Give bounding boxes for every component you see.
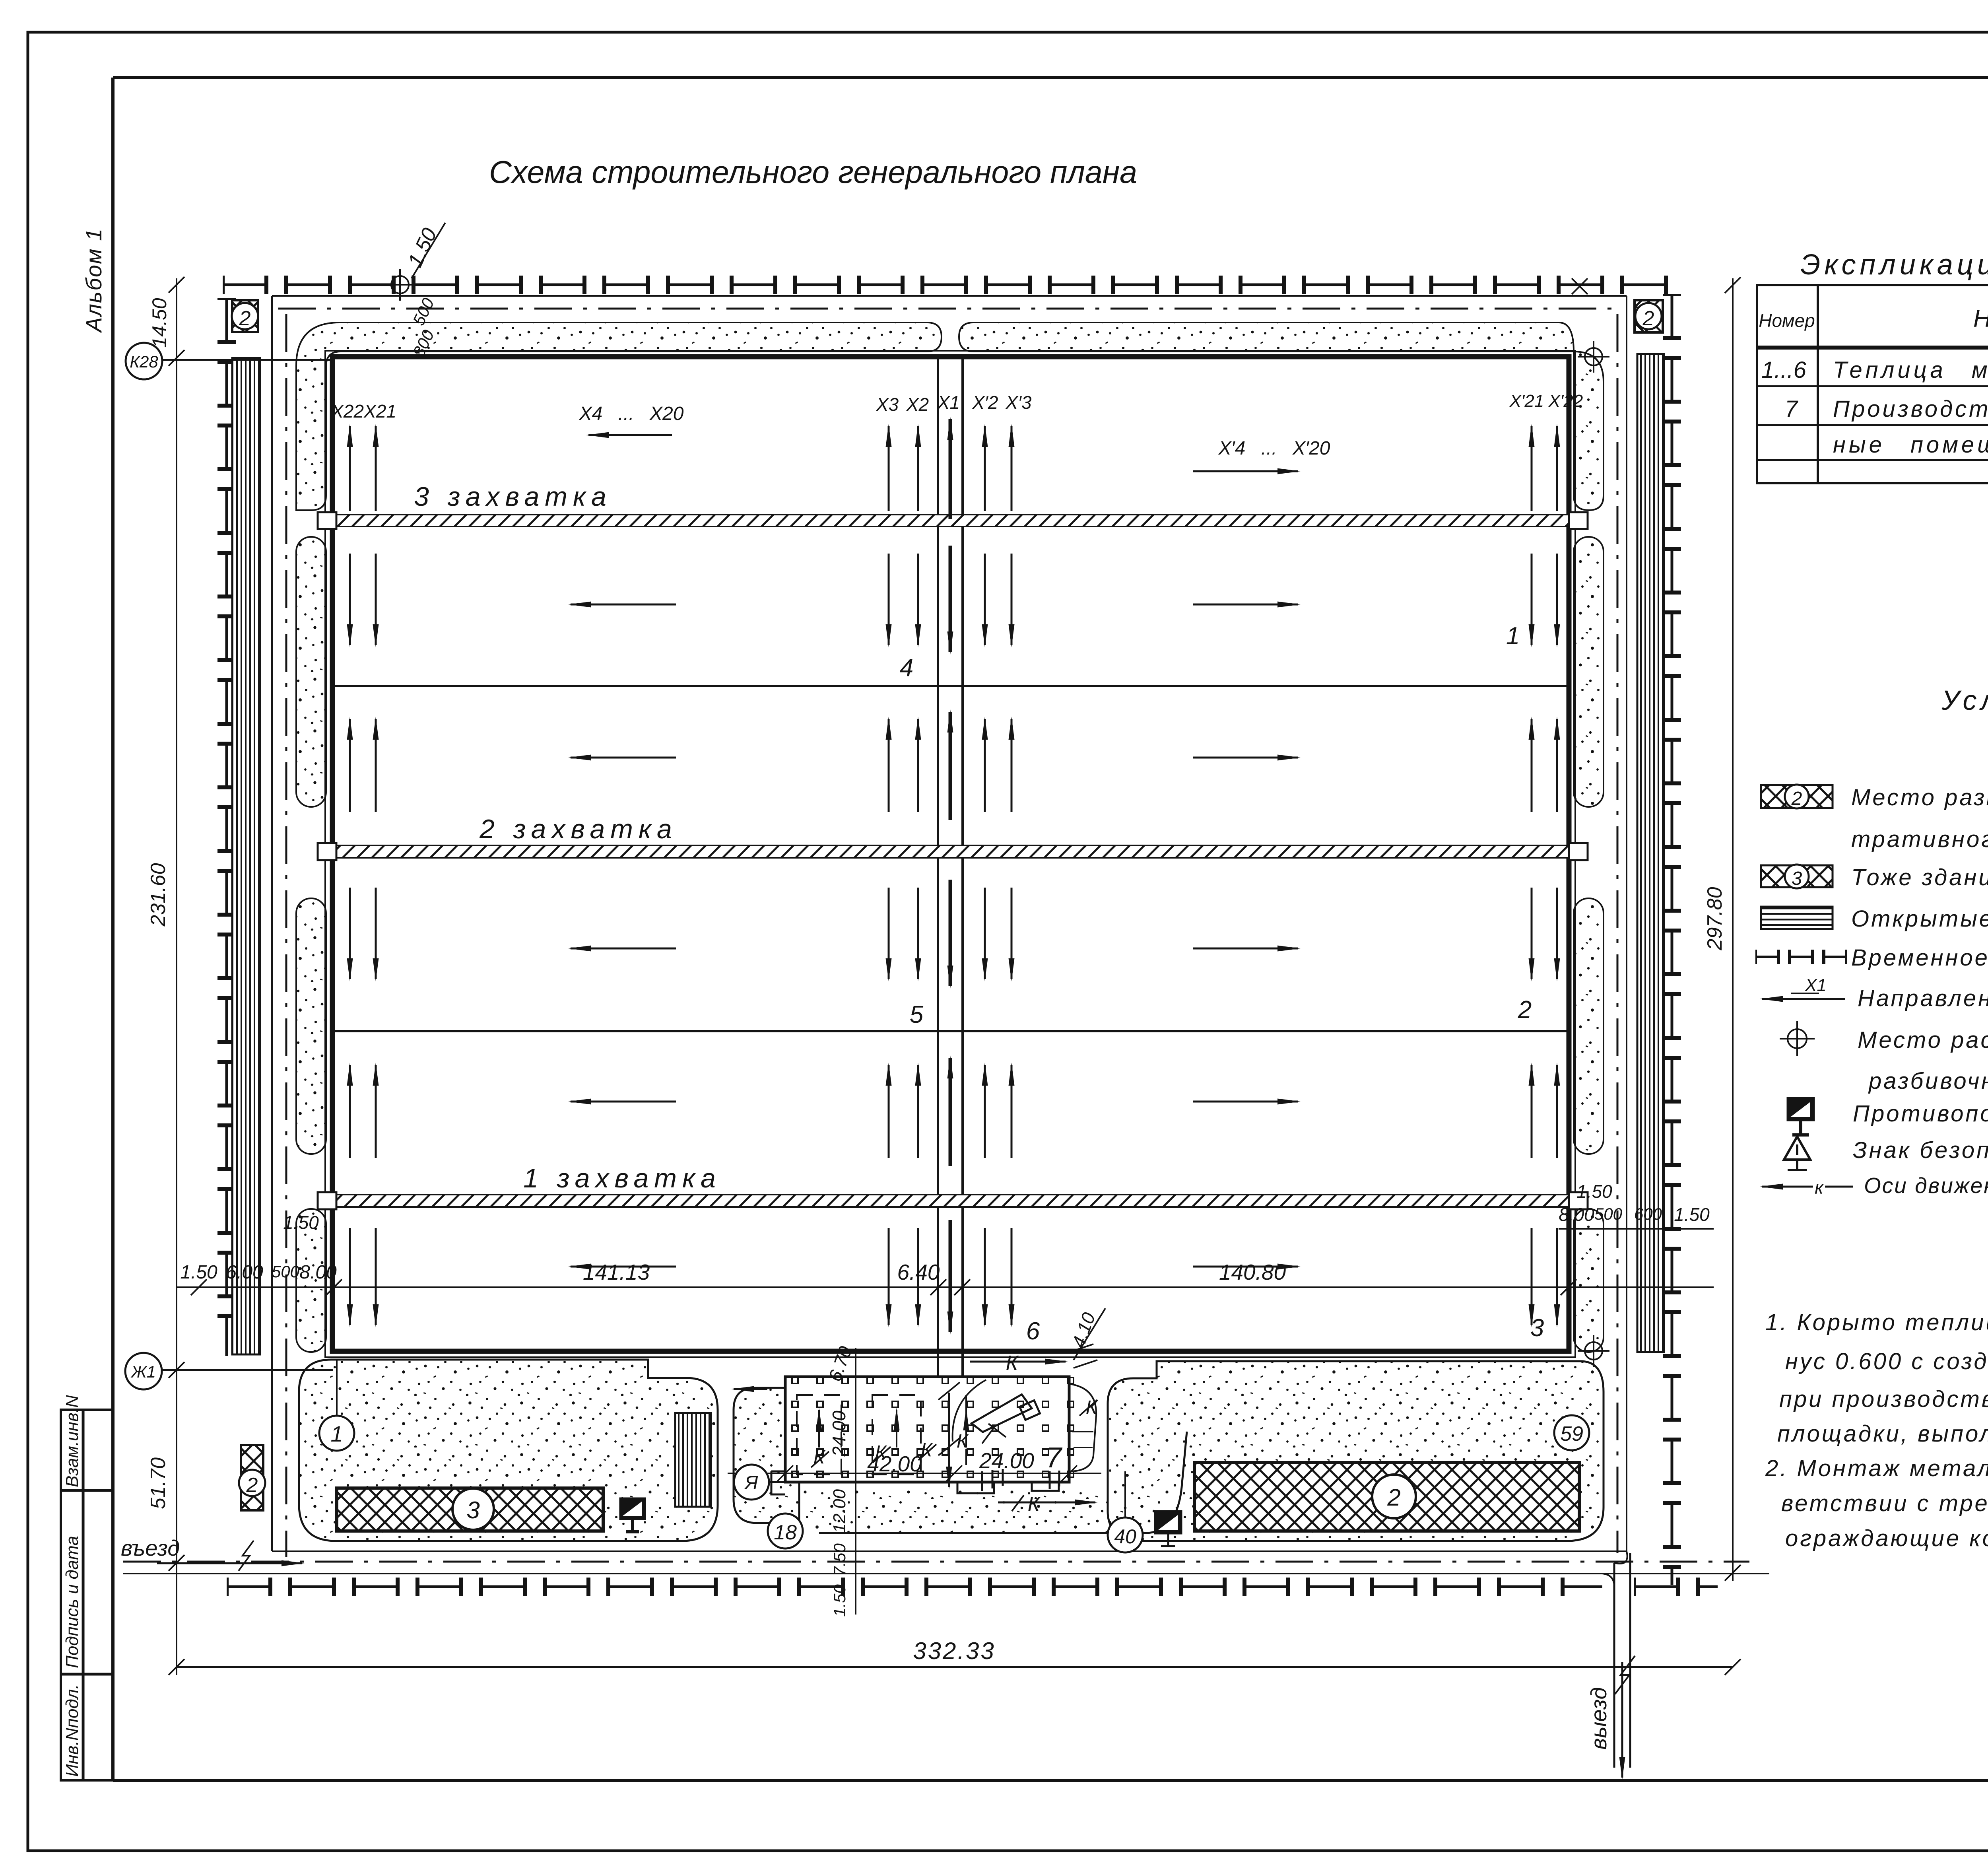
svg-text:24.00: 24.00 — [829, 1411, 849, 1457]
svg-text:X22: X22 — [331, 401, 364, 422]
svg-text:нус 0.600 с созданием проектн: нус 0.600 с созданием проектного уклона … — [1785, 1348, 1988, 1374]
svg-text:Номер: Номер — [1759, 310, 1815, 331]
svg-text:2 захватка: 2 захватка — [479, 814, 678, 844]
svg-text:X′3: X′3 — [1006, 392, 1032, 413]
svg-text:1...6: 1...6 — [1761, 357, 1807, 383]
svg-text:2: 2 — [1642, 307, 1654, 330]
svg-text:24.00: 24.00 — [979, 1448, 1034, 1473]
svg-text:1.50: 1.50 — [830, 1584, 849, 1617]
svg-text:Ж1: Ж1 — [130, 1362, 156, 1381]
svg-text:12.00: 12.00 — [830, 1489, 849, 1533]
svg-text:7: 7 — [1046, 1442, 1063, 1474]
svg-text:600: 600 — [1634, 1205, 1662, 1223]
svg-text:332.33: 332.33 — [913, 1638, 996, 1664]
svg-text:8.00: 8.00 — [1559, 1204, 1594, 1225]
svg-text:X1: X1 — [937, 392, 960, 413]
svg-text:6.00: 6.00 — [226, 1262, 263, 1283]
svg-text:1. Корыто теплицы выполняетс: 1. Корыто теплицы выполняется на отметке… — [1765, 1310, 1988, 1335]
svg-text:140.80: 140.80 — [1219, 1260, 1286, 1284]
svg-text:разбивочных осей: разбивочных осей — [1868, 1068, 1988, 1094]
svg-text:1: 1 — [1506, 622, 1520, 650]
svg-text:6: 6 — [1026, 1317, 1040, 1345]
svg-text:к: к — [1815, 1177, 1824, 1198]
svg-text:К: К — [1006, 1352, 1019, 1375]
svg-text:ограждающие конструкции.“: ограждающие конструкции.“ — [1785, 1525, 1988, 1551]
svg-text:Альбом 1: Альбом 1 — [81, 228, 106, 333]
svg-text:1.50: 1.50 — [180, 1262, 217, 1283]
svg-text:3: 3 — [1792, 868, 1802, 889]
svg-text:Знак безопасности: Знак безопасности — [1853, 1137, 1988, 1163]
svg-text:X′21: X′21 — [1509, 391, 1544, 411]
svg-text:Открытые складские площадки: Открытые складские площадки — [1851, 906, 1988, 932]
svg-text:выезд: выезд — [1586, 1687, 1611, 1750]
svg-text:2: 2 — [246, 1474, 258, 1497]
svg-text:X4 ... X20: X4 ... X20 — [579, 403, 684, 424]
svg-text:7.50: 7.50 — [830, 1543, 849, 1576]
svg-text:297.80: 297.80 — [1703, 887, 1726, 950]
svg-text:6.40: 6.40 — [897, 1260, 940, 1284]
svg-text:8.00: 8.00 — [299, 1262, 337, 1283]
svg-text:7: 7 — [1785, 396, 1799, 422]
svg-text:500: 500 — [1594, 1205, 1623, 1223]
svg-text:141.13: 141.13 — [583, 1260, 650, 1284]
svg-text:1.50: 1.50 — [1674, 1204, 1710, 1225]
svg-text:Подпись и дата: Подпись и дата — [62, 1536, 82, 1668]
svg-text:Взам.инв.N: Взам.инв.N — [62, 1395, 82, 1487]
svg-text:Временное ограждение по ГОС: Временное ограждение по ГОСТ 23407-78 — [1851, 945, 1988, 971]
svg-text:500: 500 — [272, 1262, 300, 1281]
svg-text:X2: X2 — [906, 394, 929, 415]
svg-text:Инв.Nподл.: Инв.Nподл. — [62, 1684, 82, 1777]
svg-text:2: 2 — [1791, 788, 1802, 809]
svg-text:ные помещения: ные помещения — [1833, 432, 1988, 458]
svg-text:18: 18 — [774, 1521, 797, 1544]
svg-text:тративного и санитарно-бытовог: тративного и санитарно-бытового назначен… — [1851, 826, 1988, 852]
svg-text:Направление производства раб: Направление производства работ по пролет… — [1858, 985, 1988, 1011]
svg-text:Производственные и вспомогател: Производственные и вспомогатель- — [1833, 396, 1988, 422]
svg-text:2: 2 — [1387, 1484, 1400, 1511]
svg-text:5: 5 — [910, 1001, 924, 1028]
svg-text:К: К — [1028, 1493, 1041, 1516]
svg-text:Наименование: Наименование — [1973, 305, 1988, 332]
svg-text:X3: X3 — [876, 394, 899, 415]
svg-text:Тоже зданий складского назн: Тоже зданий складского назначения — [1851, 865, 1988, 890]
svg-text:Я: Я — [744, 1473, 758, 1494]
svg-text:40: 40 — [1114, 1525, 1136, 1548]
svg-text:при производстве работ по в: при производстве работ по вертикальной п… — [1779, 1386, 1988, 1412]
svg-text:площадки, выполняемой в подг: площадки, выполняемой в подготовительный… — [1777, 1421, 1988, 1447]
svg-text:1.50: 1.50 — [283, 1212, 319, 1233]
svg-text:231.60: 231.60 — [147, 863, 170, 927]
svg-text:К28: К28 — [130, 352, 158, 371]
svg-text:ветствии с требованиями СНиП: ветствии с требованиями СНиП 3.03.01-87 … — [1781, 1490, 1988, 1516]
svg-text:51.70: 51.70 — [147, 1457, 170, 1509]
svg-text:X′4 ... X′20: X′4 ... X′20 — [1218, 438, 1330, 459]
svg-text:3: 3 — [466, 1497, 480, 1523]
svg-text:Схема строительного генераль: Схема строительного генерального плана — [489, 154, 1137, 190]
svg-text:X′22: X′22 — [1548, 391, 1583, 411]
svg-text:1.50: 1.50 — [1576, 1181, 1612, 1202]
svg-text:Противопожарный щит: Противопожарный щит — [1853, 1101, 1988, 1127]
svg-text:К: К — [957, 1431, 969, 1452]
svg-text:1 захватка: 1 захватка — [523, 1163, 721, 1193]
svg-text:Место расположения знаков з: Место расположения знаков закрепления — [1858, 1027, 1988, 1053]
svg-text:2: 2 — [1518, 996, 1532, 1024]
svg-text:2. Монтаж металлоконструкций: 2. Монтаж металлоконструкций теплиц выпо… — [1765, 1455, 1988, 1481]
svg-text:Оси движения крана при монтаже: Оси движения крана при монтаже конструкц… — [1864, 1173, 1988, 1198]
svg-text:X1: X1 — [1805, 975, 1827, 995]
svg-text:1: 1 — [330, 1421, 343, 1446]
svg-text:Место размещения временных зда: Место размещения временных зданий админи… — [1851, 785, 1988, 810]
svg-text:Теплица многопролетная: Теплица многопролетная — [1833, 357, 1988, 383]
svg-text:2: 2 — [239, 307, 251, 330]
svg-text:въезд: въезд — [121, 1535, 180, 1560]
svg-text:X21: X21 — [363, 401, 396, 422]
svg-text:Экспликация помещений: Экспликация помещений — [1800, 249, 1988, 281]
svg-text:X′2: X′2 — [972, 392, 998, 413]
svg-text:14.50: 14.50 — [148, 298, 171, 348]
svg-text:Условные обозначения: Условные обозначения — [1941, 685, 1988, 716]
svg-text:3 захватка: 3 захватка — [414, 482, 612, 512]
svg-text:4: 4 — [900, 654, 913, 682]
svg-text:59: 59 — [1560, 1422, 1583, 1446]
